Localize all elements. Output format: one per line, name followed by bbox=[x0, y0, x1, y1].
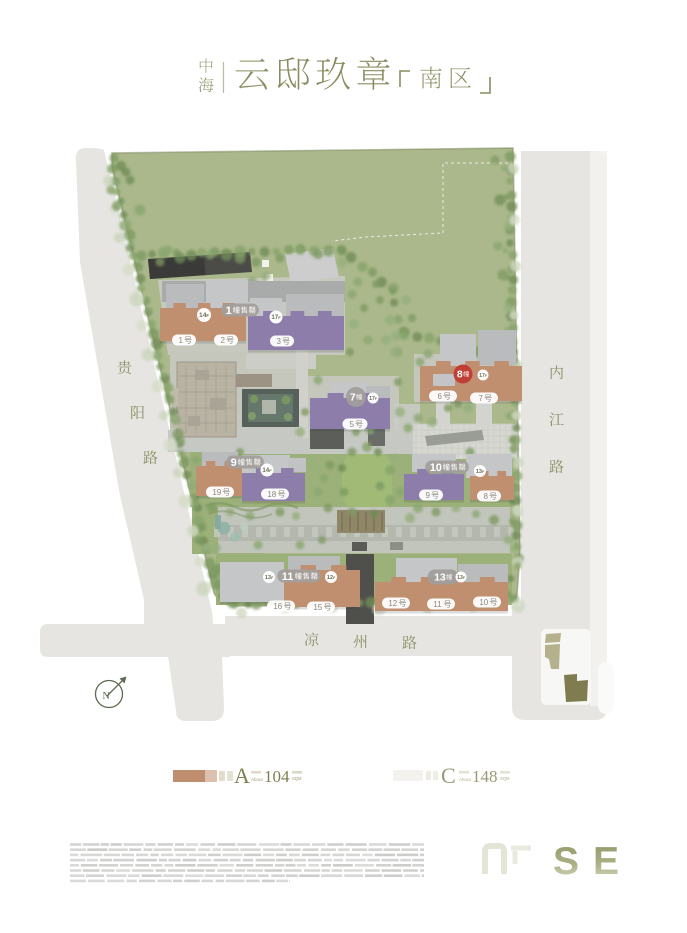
svg-text:14F: 14F bbox=[262, 467, 272, 474]
svg-text:1: 1 bbox=[226, 305, 232, 317]
svg-text:14F: 14F bbox=[199, 312, 209, 319]
svg-text:9: 9 bbox=[426, 491, 431, 500]
svg-text:104: 104 bbox=[264, 767, 290, 786]
svg-text:7: 7 bbox=[350, 392, 356, 404]
svg-text:8: 8 bbox=[457, 369, 463, 381]
svg-text:1: 1 bbox=[179, 336, 184, 345]
svg-text:5: 5 bbox=[350, 420, 355, 429]
svg-text:18: 18 bbox=[267, 490, 276, 499]
svg-text:SQM: SQM bbox=[292, 776, 302, 781]
svg-text:12: 12 bbox=[388, 599, 397, 608]
svg-text:11: 11 bbox=[433, 600, 442, 609]
svg-text:19: 19 bbox=[212, 488, 221, 497]
svg-text:A: A bbox=[234, 763, 250, 788]
svg-text:SQM: SQM bbox=[500, 776, 510, 781]
svg-text:9: 9 bbox=[231, 457, 237, 469]
svg-text:11: 11 bbox=[282, 571, 294, 583]
svg-text:About: About bbox=[459, 777, 472, 782]
svg-text:6: 6 bbox=[438, 392, 443, 401]
svg-text:15: 15 bbox=[313, 603, 322, 612]
svg-text:C: C bbox=[441, 763, 456, 788]
svg-text:16: 16 bbox=[273, 602, 282, 611]
svg-text:About: About bbox=[251, 777, 264, 782]
svg-text:7: 7 bbox=[479, 394, 484, 403]
svg-text:SE: SE bbox=[553, 840, 633, 883]
svg-text:17F: 17F bbox=[271, 314, 281, 321]
svg-text:148: 148 bbox=[472, 767, 498, 786]
svg-text:N: N bbox=[103, 691, 110, 702]
svg-text:2: 2 bbox=[221, 336, 226, 345]
svg-text:8: 8 bbox=[484, 492, 489, 501]
svg-text:13: 13 bbox=[434, 572, 446, 584]
svg-text:10: 10 bbox=[479, 598, 488, 607]
svg-text:3: 3 bbox=[277, 337, 282, 346]
svg-text:10: 10 bbox=[430, 462, 442, 474]
